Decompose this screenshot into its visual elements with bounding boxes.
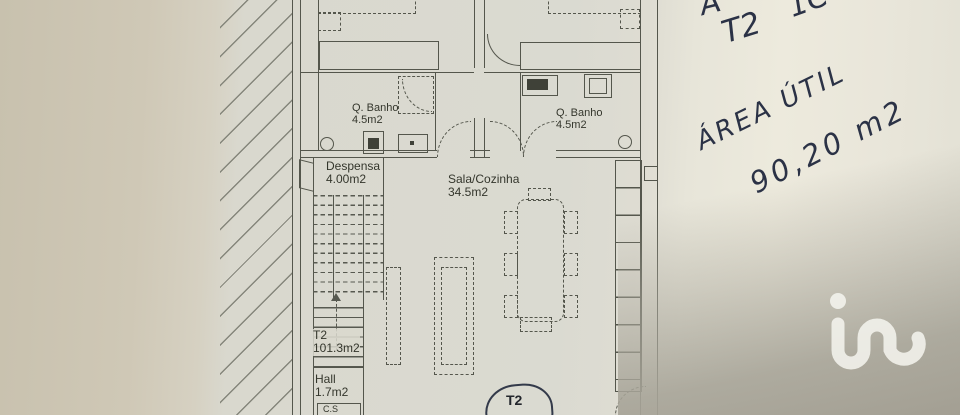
room-name: Sala/Cozinha (448, 173, 519, 186)
bath-right-left-wall (520, 72, 521, 151)
room-name: Q. Banho (556, 107, 602, 119)
chair-outline (504, 211, 518, 234)
room-label-living-kitchen: Sala/Cozinha 34.5m2 (448, 173, 519, 200)
hall-door-arc-center (490, 121, 524, 157)
outer-wall-left (292, 0, 301, 415)
bath-left-sink-drain (410, 141, 414, 145)
kitchen-island-inner (441, 267, 467, 365)
bath-left-top-wall (300, 72, 474, 73)
bath-left-right-wall (435, 72, 436, 151)
stairs-upper-treads (313, 195, 383, 300)
stairs-right-edge (383, 157, 384, 300)
bedroom-right-door-arc (487, 34, 520, 66)
room-area: 4.5m2 (352, 114, 398, 126)
nightstand-left-outline (318, 12, 341, 31)
room-area: 4.5m2 (556, 119, 602, 131)
pantry-window (299, 159, 314, 192)
chair-outline (504, 253, 518, 276)
hall-door-arc-left (437, 121, 471, 157)
iad-logo-mark-icon (822, 288, 952, 410)
chair-outline (520, 317, 552, 332)
room-name: Hall (315, 373, 348, 386)
chair-outline (564, 211, 578, 234)
unit-marker-label: T2 (506, 392, 522, 408)
stairs-rail-2 (363, 195, 364, 300)
bath-left-fixture-circle (320, 137, 334, 151)
wardrobe-left (319, 41, 439, 70)
room-name: Despensa (326, 160, 380, 173)
sala-top-wall-b (470, 150, 490, 158)
unit-name: T2 (313, 329, 360, 342)
room-area: 4.00m2 (326, 173, 380, 186)
room-label-hall: Hall 1.7m2 (315, 373, 348, 400)
room-label-wc-small: C.S (323, 404, 338, 414)
room-label-bath-right: Q. Banho 4.5m2 (556, 107, 602, 132)
unit-area: 101.3m2 (313, 342, 360, 355)
central-wall-top (474, 0, 485, 68)
stairs-arrow-icon (331, 293, 341, 301)
room-label-pantry: Despensa 4.00m2 (326, 160, 380, 187)
room-area: 1.7m2 (315, 386, 348, 399)
chair-outline (564, 253, 578, 276)
hall-door-arc-right (523, 121, 557, 157)
unit-label: T2 101.3m2 (313, 329, 360, 356)
exterior-hatch-band (220, 0, 292, 415)
room-area: 34.5m2 (448, 186, 519, 199)
iad-logo (822, 288, 952, 410)
handwriting-unit: T2 (718, 5, 766, 51)
floor-plan-photo: Q. Banho 4.5m2 Q. Banho 4.5m2 Despensa 4… (0, 0, 960, 415)
bath-right-toilet-seat (589, 78, 607, 94)
hall-right-wall (363, 300, 364, 415)
hall-top-wall (313, 367, 363, 368)
stairs-rail-1 (333, 195, 334, 300)
bath-left-toilet-seat (368, 138, 379, 149)
bath-right-sink-basin (527, 79, 548, 90)
chair-outline (504, 295, 518, 318)
kitchen-side-counter-outline (386, 267, 401, 365)
wardrobe-right (520, 42, 641, 70)
chair-outline (564, 295, 578, 318)
room-name: Q. Banho (352, 102, 398, 114)
chair-outline (528, 188, 551, 201)
nightstand-right-outline (620, 9, 640, 29)
room-label-bath-left: Q. Banho 4.5m2 (352, 102, 398, 127)
dining-table-outline (517, 199, 564, 322)
handwriting-fragment-right: 1C (783, 0, 833, 25)
bath-right-top-wall (484, 72, 640, 73)
